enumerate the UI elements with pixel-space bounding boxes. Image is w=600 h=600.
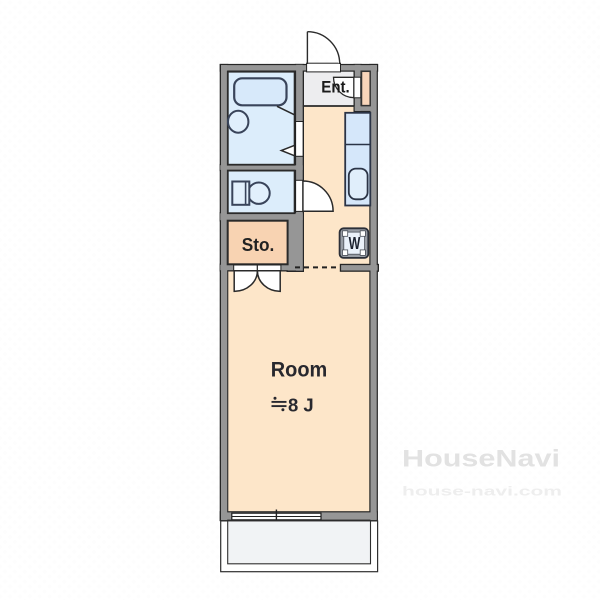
svg-text:Sto.: Sto.: [242, 234, 275, 255]
svg-text:8 J: 8 J: [288, 394, 314, 415]
svg-text:HouseNavi: HouseNavi: [402, 446, 560, 473]
svg-text:W: W: [349, 233, 361, 253]
svg-text:Room: Room: [271, 358, 328, 382]
svg-text:Ent.: Ent.: [321, 79, 349, 97]
svg-text:house-navi.com: house-navi.com: [402, 484, 562, 499]
